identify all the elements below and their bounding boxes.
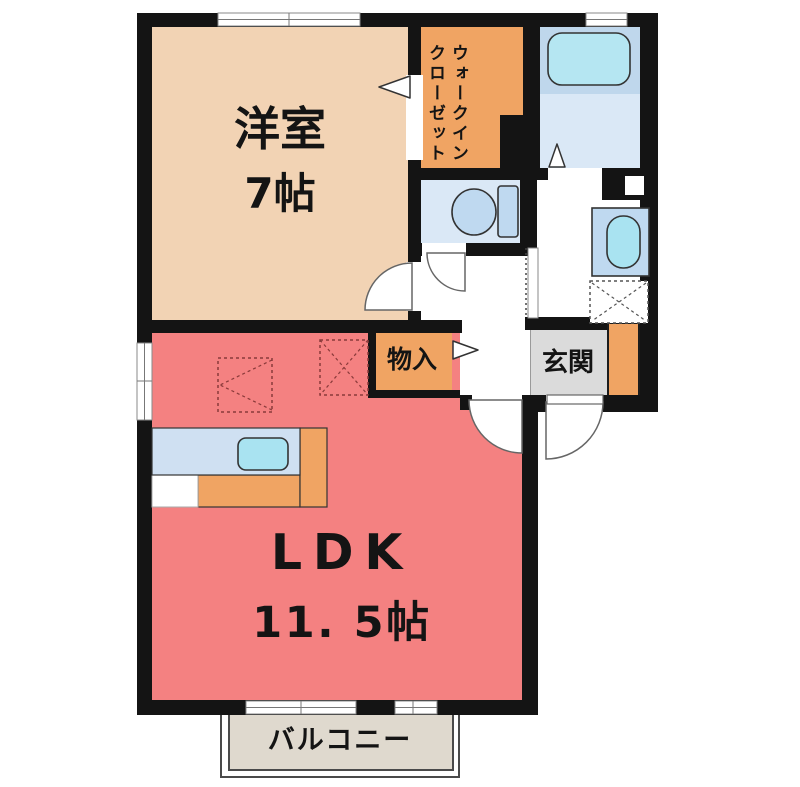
room-label-storage: 物入 (368, 346, 456, 374)
walk-in-closet-line1: ウォークイン (446, 34, 469, 174)
western-room-size: 7帖 (168, 171, 392, 217)
bathtub-deck-area (540, 27, 640, 94)
walk-in-closet-line2: クローゼット (423, 34, 446, 174)
ldk-size: 11. 5帖 (162, 600, 522, 647)
wall-right (640, 13, 658, 412)
toilet-doorway (422, 243, 466, 256)
pipe-space-block (602, 168, 640, 200)
wall-left (137, 13, 152, 715)
wall-washroom-bottom (525, 317, 607, 330)
wall-ldk-right (522, 397, 538, 715)
wall-bottom (137, 700, 538, 715)
closet-doorway (406, 75, 423, 160)
closet-notch (500, 115, 523, 168)
floor-plan: 洋室 7帖 ウォークイン クローゼット 物入 玄関 LDK 11. 5帖 バルコ… (0, 0, 800, 787)
toilet-room-area (421, 180, 520, 243)
wall-closet-right (523, 13, 540, 180)
front-doorway (546, 395, 603, 412)
western-room-name: 洋室 (234, 102, 326, 156)
room-label-balcony: バルコニー (228, 726, 452, 756)
wall-storage-bottom (368, 390, 460, 398)
washroom-sliding-door (526, 248, 538, 318)
wall-hall-stub (460, 395, 472, 410)
room-label-walk-in-closet: ウォークイン クローゼット (423, 34, 469, 174)
ldk-name: LDK (271, 524, 413, 581)
bath-doorway (548, 168, 602, 180)
door-swing-toilet (427, 253, 465, 291)
room-label-ldk: LDK 11. 5帖 (162, 526, 522, 647)
room-label-entrance: 玄関 (528, 349, 608, 378)
shoe-cabinet (607, 322, 640, 397)
room-label-western-room: 洋室 7帖 (168, 104, 392, 217)
western-room-doorway (406, 262, 423, 311)
wall-top (137, 13, 658, 27)
